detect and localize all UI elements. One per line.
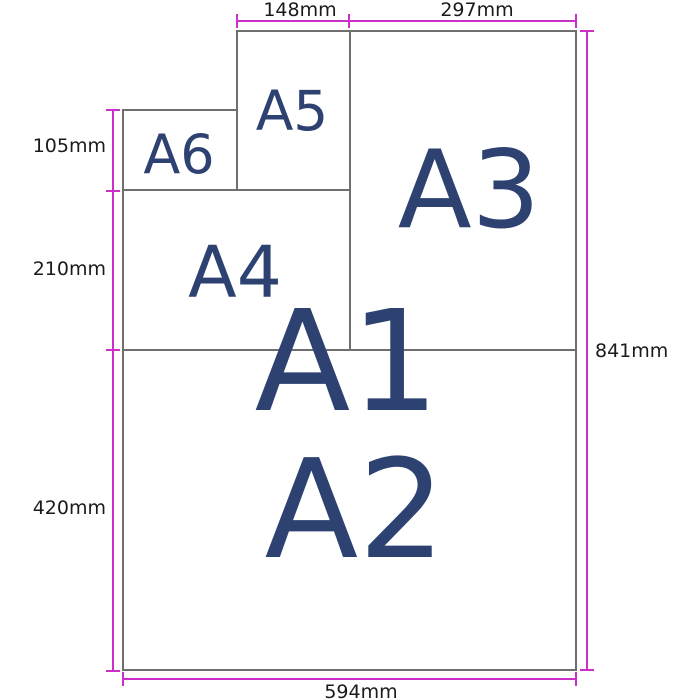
paper-label-a6: A6 <box>143 123 214 186</box>
paper-sizes-diagram: A1 A2 A3 A4 A5 A6 <box>0 0 700 700</box>
paper-sizes-canvas: A1 A2 A3 A4 A5 A6 <box>0 0 700 700</box>
dimension-label-a5-width: 148mm <box>263 0 336 21</box>
dimension-label-a4-height: 210mm <box>33 258 106 280</box>
paper-label-a1: A1 <box>255 281 440 444</box>
paper-label-a5: A5 <box>256 79 329 143</box>
dimension-label-a2-height: 420mm <box>33 497 106 519</box>
paper-label-a2: A2 <box>265 431 446 590</box>
dimension-label-a3-width: 297mm <box>440 0 513 21</box>
dimension-label-a1-height: 841mm <box>595 340 668 362</box>
dimension-label-a6-height: 105mm <box>33 135 106 157</box>
paper-label-a3: A3 <box>398 128 541 253</box>
paper-label-a4: A4 <box>188 231 282 314</box>
dimension-label-a1-width: 594mm <box>324 681 397 700</box>
